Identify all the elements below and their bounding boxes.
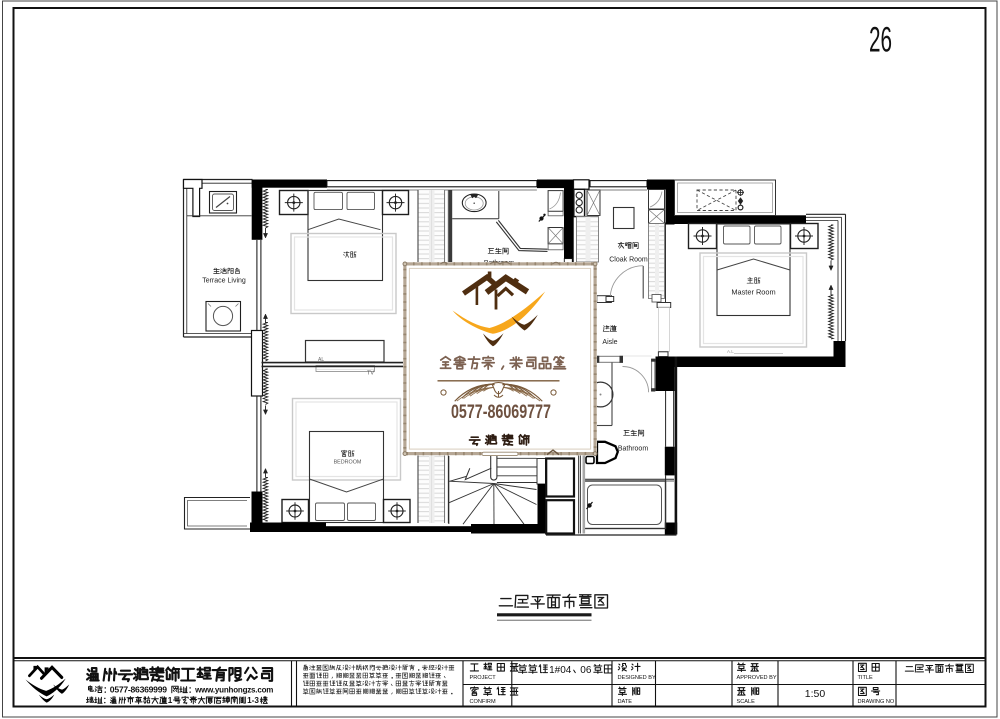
svg-text:TV: TV — [367, 371, 374, 377]
svg-text:www.yunhongzs.com: www.yunhongzs.com — [194, 686, 273, 695]
svg-text:26: 26 — [869, 21, 892, 60]
svg-text:06: 06 — [580, 665, 592, 676]
svg-text:Master Room: Master Room — [731, 288, 775, 297]
svg-text:Bathroom: Bathroom — [618, 446, 649, 453]
svg-text:0577-86369999: 0577-86369999 — [110, 685, 167, 695]
svg-text:DATE: DATE — [618, 699, 633, 705]
svg-text:APPROVED BY: APPROVED BY — [737, 675, 777, 681]
svg-text:DESIGNED BY: DESIGNED BY — [618, 675, 657, 681]
svg-text:Aisle: Aisle — [602, 339, 617, 346]
svg-text:1-3: 1-3 — [247, 696, 259, 705]
svg-text:1:50: 1:50 — [805, 688, 826, 700]
svg-text:1#04: 1#04 — [549, 665, 572, 676]
svg-text:SCALE: SCALE — [737, 699, 756, 705]
svg-text:A.L: A.L — [727, 349, 734, 354]
svg-text:Terrace Living: Terrace Living — [202, 278, 246, 285]
svg-text:DRAWING NO: DRAWING NO — [858, 699, 895, 705]
svg-text:0577-86069777: 0577-86069777 — [451, 402, 551, 423]
svg-text:CONFIRM: CONFIRM — [470, 699, 496, 705]
svg-text:1: 1 — [168, 696, 173, 705]
svg-text:BEDROOM: BEDROOM — [334, 460, 362, 466]
svg-text:Cloak Room: Cloak Room — [609, 257, 648, 264]
svg-text:：: ： — [103, 696, 111, 705]
svg-text:PROJECT: PROJECT — [470, 675, 497, 681]
svg-text:TITLE: TITLE — [858, 675, 873, 681]
